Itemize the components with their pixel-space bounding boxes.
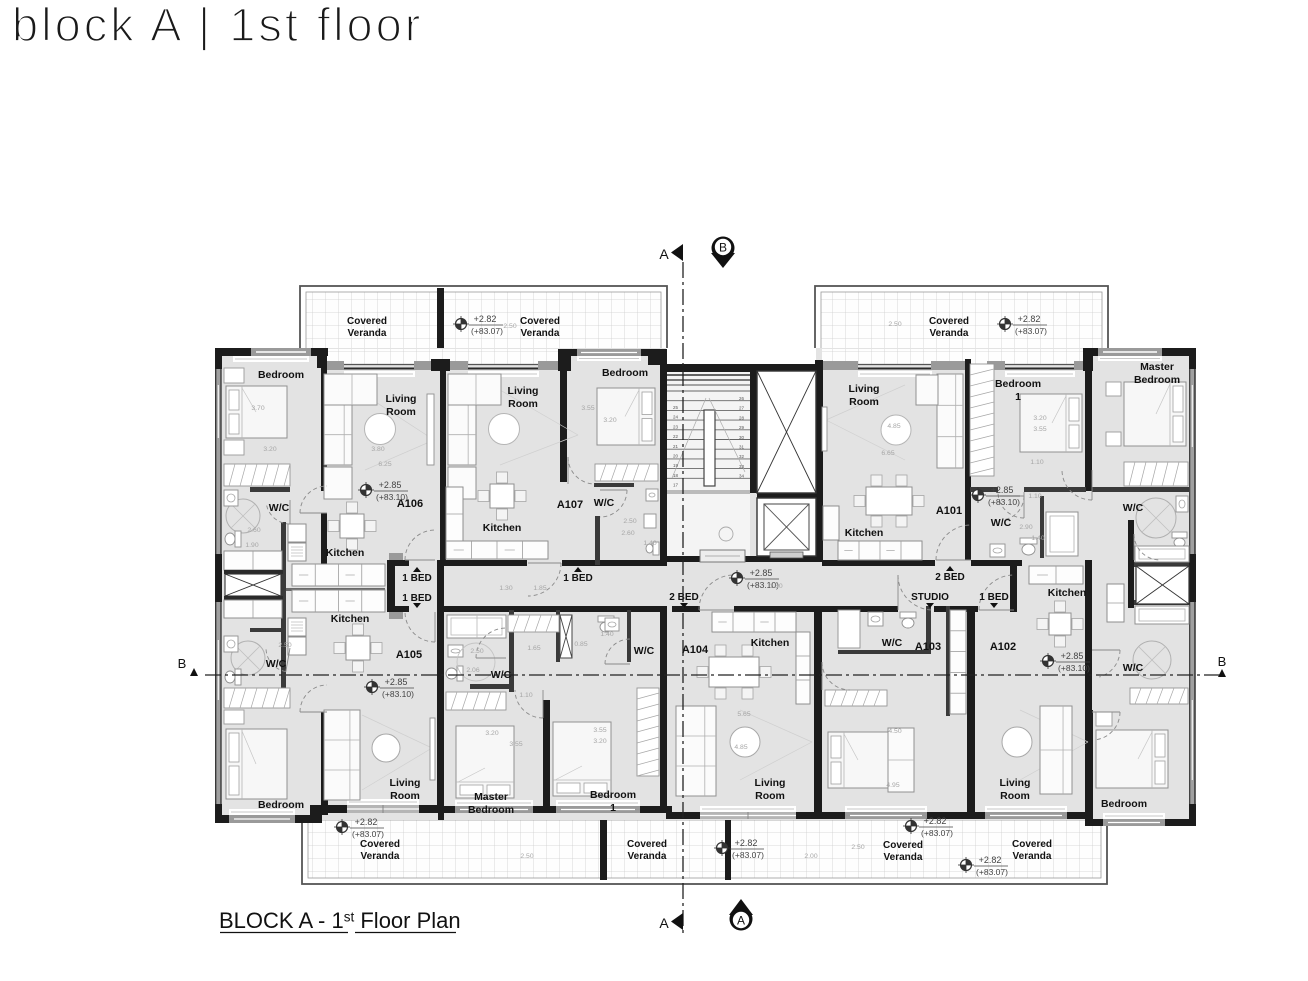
svg-text:3.20: 3.20: [593, 738, 606, 745]
svg-text:+2.85: +2.85: [385, 677, 408, 687]
svg-text:(+83.07): (+83.07): [1015, 326, 1047, 336]
svg-text:26: 26: [739, 396, 745, 401]
svg-text:Room: Room: [508, 398, 538, 410]
svg-text:Veranda: Veranda: [628, 851, 667, 862]
svg-text:B: B: [1218, 654, 1227, 669]
svg-text:3.20: 3.20: [603, 417, 616, 424]
svg-text:2.50: 2.50: [888, 321, 901, 328]
svg-text:Covered: Covered: [347, 316, 387, 327]
svg-text:Bedroom: Bedroom: [1101, 798, 1147, 810]
svg-text:W/C: W/C: [266, 658, 287, 670]
svg-text:1.85: 1.85: [533, 585, 546, 592]
svg-text:Bedroom: Bedroom: [1134, 374, 1180, 386]
svg-text:2.00: 2.00: [804, 853, 817, 860]
svg-text:1.40: 1.40: [643, 540, 656, 547]
svg-text:3.20: 3.20: [1033, 415, 1046, 422]
svg-text:2.06: 2.06: [466, 667, 479, 674]
svg-text:1.65: 1.65: [527, 645, 540, 652]
svg-text:(+83.10): (+83.10): [382, 689, 414, 699]
svg-text:B: B: [178, 656, 187, 671]
svg-text:1.40: 1.40: [1031, 535, 1044, 542]
svg-text:21: 21: [673, 444, 679, 449]
svg-text:block A | 1st floor: block A | 1st floor: [12, 0, 423, 51]
svg-text:B: B: [719, 241, 727, 255]
svg-text:STUDIO: STUDIO: [911, 592, 949, 603]
svg-text:4.85: 4.85: [887, 423, 900, 430]
svg-text:Covered: Covered: [883, 840, 923, 851]
svg-text:17: 17: [673, 483, 679, 488]
svg-text:Living: Living: [755, 777, 786, 789]
svg-text:Living: Living: [1000, 777, 1031, 789]
svg-text:25: 25: [673, 405, 679, 410]
svg-text:+2.82: +2.82: [979, 855, 1002, 865]
svg-text:Bedroom: Bedroom: [995, 378, 1041, 390]
svg-text:1 BED: 1 BED: [402, 573, 431, 584]
svg-text:W/C: W/C: [991, 517, 1012, 529]
svg-text:Covered: Covered: [1012, 839, 1052, 850]
svg-text:4.95: 4.95: [886, 782, 899, 789]
svg-text:Room: Room: [755, 790, 785, 802]
svg-text:31: 31: [739, 445, 745, 450]
svg-text:23: 23: [673, 424, 679, 429]
svg-text:+2.85: +2.85: [379, 480, 402, 490]
svg-text:Bedroom: Bedroom: [258, 369, 304, 381]
svg-text:33: 33: [739, 464, 745, 469]
svg-text:(+83.07): (+83.07): [921, 828, 953, 838]
svg-text:30: 30: [739, 435, 745, 440]
svg-text:Master: Master: [474, 791, 508, 803]
svg-text:Covered: Covered: [929, 316, 969, 327]
svg-text:32: 32: [739, 454, 745, 459]
svg-text:W/C: W/C: [634, 645, 655, 657]
svg-text:28: 28: [739, 415, 745, 420]
svg-text:Kitchen: Kitchen: [326, 547, 365, 559]
svg-text:Living: Living: [386, 393, 417, 405]
svg-text:3.70: 3.70: [251, 405, 264, 412]
svg-text:20: 20: [673, 454, 679, 459]
svg-text:24: 24: [673, 415, 679, 420]
svg-text:Living: Living: [390, 777, 421, 789]
svg-text:Bedroom: Bedroom: [468, 804, 514, 816]
svg-text:Bedroom: Bedroom: [258, 799, 304, 811]
svg-text:2.50: 2.50: [851, 844, 864, 851]
svg-text:Room: Room: [849, 396, 879, 408]
svg-text:Bedroom: Bedroom: [590, 789, 636, 801]
svg-text:2.50: 2.50: [520, 853, 533, 860]
svg-text:W/C: W/C: [594, 497, 615, 509]
svg-text:1 BED: 1 BED: [563, 573, 592, 584]
svg-text:A: A: [659, 915, 669, 931]
svg-text:Veranda: Veranda: [1013, 851, 1052, 862]
svg-text:Master: Master: [1140, 361, 1174, 373]
svg-text:27: 27: [739, 406, 745, 411]
svg-text:1.90: 1.90: [245, 542, 258, 549]
svg-text:Covered: Covered: [627, 839, 667, 850]
svg-text:+2.85: +2.85: [750, 568, 773, 578]
svg-text:29: 29: [739, 425, 745, 430]
svg-text:1: 1: [610, 802, 616, 814]
svg-text:1.10: 1.10: [1028, 493, 1041, 500]
svg-text:Covered: Covered: [520, 316, 560, 327]
svg-text:(+83.07): (+83.07): [471, 326, 503, 336]
svg-text:Veranda: Veranda: [361, 851, 400, 862]
svg-text:W/C: W/C: [269, 502, 290, 514]
svg-text:2.50: 2.50: [503, 323, 516, 330]
svg-text:19: 19: [673, 463, 679, 468]
svg-text:1: 1: [1015, 391, 1021, 403]
svg-text:2.90: 2.90: [1019, 524, 1032, 531]
svg-text:2.60: 2.60: [621, 530, 634, 537]
svg-text:A107: A107: [557, 499, 583, 511]
svg-text:(+83.07): (+83.07): [976, 867, 1008, 877]
svg-text:2.50: 2.50: [623, 518, 636, 525]
svg-text:4.50: 4.50: [888, 728, 901, 735]
svg-text:2 BED: 2 BED: [669, 592, 698, 603]
svg-text:6.65: 6.65: [881, 450, 894, 457]
svg-text:1.10: 1.10: [1030, 459, 1043, 466]
svg-text:W/C: W/C: [1123, 502, 1144, 514]
svg-text:+2.85: +2.85: [1061, 651, 1084, 661]
svg-text:3.55: 3.55: [509, 741, 522, 748]
svg-text:A102: A102: [990, 641, 1016, 653]
svg-text:A104: A104: [682, 644, 709, 656]
svg-text:Kitchen: Kitchen: [845, 527, 884, 539]
svg-text:Veranda: Veranda: [930, 328, 969, 339]
svg-text:1.10: 1.10: [519, 692, 532, 699]
svg-text:+2.82: +2.82: [924, 816, 947, 826]
svg-text:Kitchen: Kitchen: [1048, 587, 1087, 599]
svg-text:1.50: 1.50: [769, 583, 782, 590]
svg-text:Kitchen: Kitchen: [751, 637, 790, 649]
svg-text:3.20: 3.20: [485, 730, 498, 737]
svg-text:1.30: 1.30: [499, 585, 512, 592]
svg-text:5.65: 5.65: [737, 711, 750, 718]
svg-text:1 BED: 1 BED: [402, 593, 431, 604]
svg-text:1 BED: 1 BED: [979, 592, 1008, 603]
svg-text:2.50: 2.50: [470, 648, 483, 655]
svg-text:(+83.07): (+83.07): [732, 850, 764, 860]
svg-text:Living: Living: [508, 385, 539, 397]
svg-text:+2.82: +2.82: [355, 817, 378, 827]
svg-text:3.20: 3.20: [263, 446, 276, 453]
svg-text:Kitchen: Kitchen: [483, 522, 522, 534]
svg-text:A105: A105: [396, 649, 422, 661]
svg-text:+2.82: +2.82: [735, 838, 758, 848]
svg-text:6.25: 6.25: [378, 461, 391, 468]
svg-text:3.55: 3.55: [581, 405, 594, 412]
svg-text:4.85: 4.85: [734, 744, 747, 751]
svg-text:3.80: 3.80: [371, 446, 384, 453]
svg-text:Living: Living: [849, 383, 880, 395]
svg-text:Bedroom: Bedroom: [602, 367, 648, 379]
svg-text:A: A: [659, 246, 669, 262]
svg-text:1.40: 1.40: [600, 631, 613, 638]
svg-text:A101: A101: [936, 505, 962, 517]
svg-text:Veranda: Veranda: [884, 852, 923, 863]
svg-text:0.85: 0.85: [574, 641, 587, 648]
svg-text:Room: Room: [1000, 790, 1030, 802]
svg-text:A103: A103: [915, 641, 941, 653]
svg-text:22: 22: [673, 434, 679, 439]
svg-text:BLOCK A - 1st Floor Plan: BLOCK A - 1st Floor Plan: [219, 908, 461, 933]
svg-text:A: A: [737, 914, 745, 928]
svg-text:Veranda: Veranda: [521, 328, 560, 339]
svg-text:(+83.10): (+83.10): [988, 497, 1020, 507]
svg-text:2 BED: 2 BED: [935, 572, 964, 583]
svg-text:+2.82: +2.82: [1018, 314, 1041, 324]
svg-text:18: 18: [673, 473, 679, 478]
svg-text:34: 34: [739, 474, 745, 479]
svg-text:+2.85: +2.85: [991, 485, 1014, 495]
svg-text:Room: Room: [386, 406, 416, 418]
svg-text:Room: Room: [390, 790, 420, 802]
svg-text:(+83.10): (+83.10): [1058, 663, 1090, 673]
svg-text:3.55: 3.55: [593, 727, 606, 734]
svg-text:(+83.07): (+83.07): [352, 829, 384, 839]
svg-text:Veranda: Veranda: [348, 328, 387, 339]
svg-text:2.50: 2.50: [278, 642, 291, 649]
svg-text:Covered: Covered: [360, 839, 400, 850]
svg-text:3.55: 3.55: [1033, 426, 1046, 433]
svg-text:W/C: W/C: [882, 637, 903, 649]
svg-text:2.60: 2.60: [247, 527, 260, 534]
svg-text:Kitchen: Kitchen: [331, 613, 370, 625]
svg-text:W/C: W/C: [1123, 662, 1144, 674]
svg-text:A106: A106: [397, 498, 423, 510]
svg-text:+2.82: +2.82: [474, 314, 497, 324]
